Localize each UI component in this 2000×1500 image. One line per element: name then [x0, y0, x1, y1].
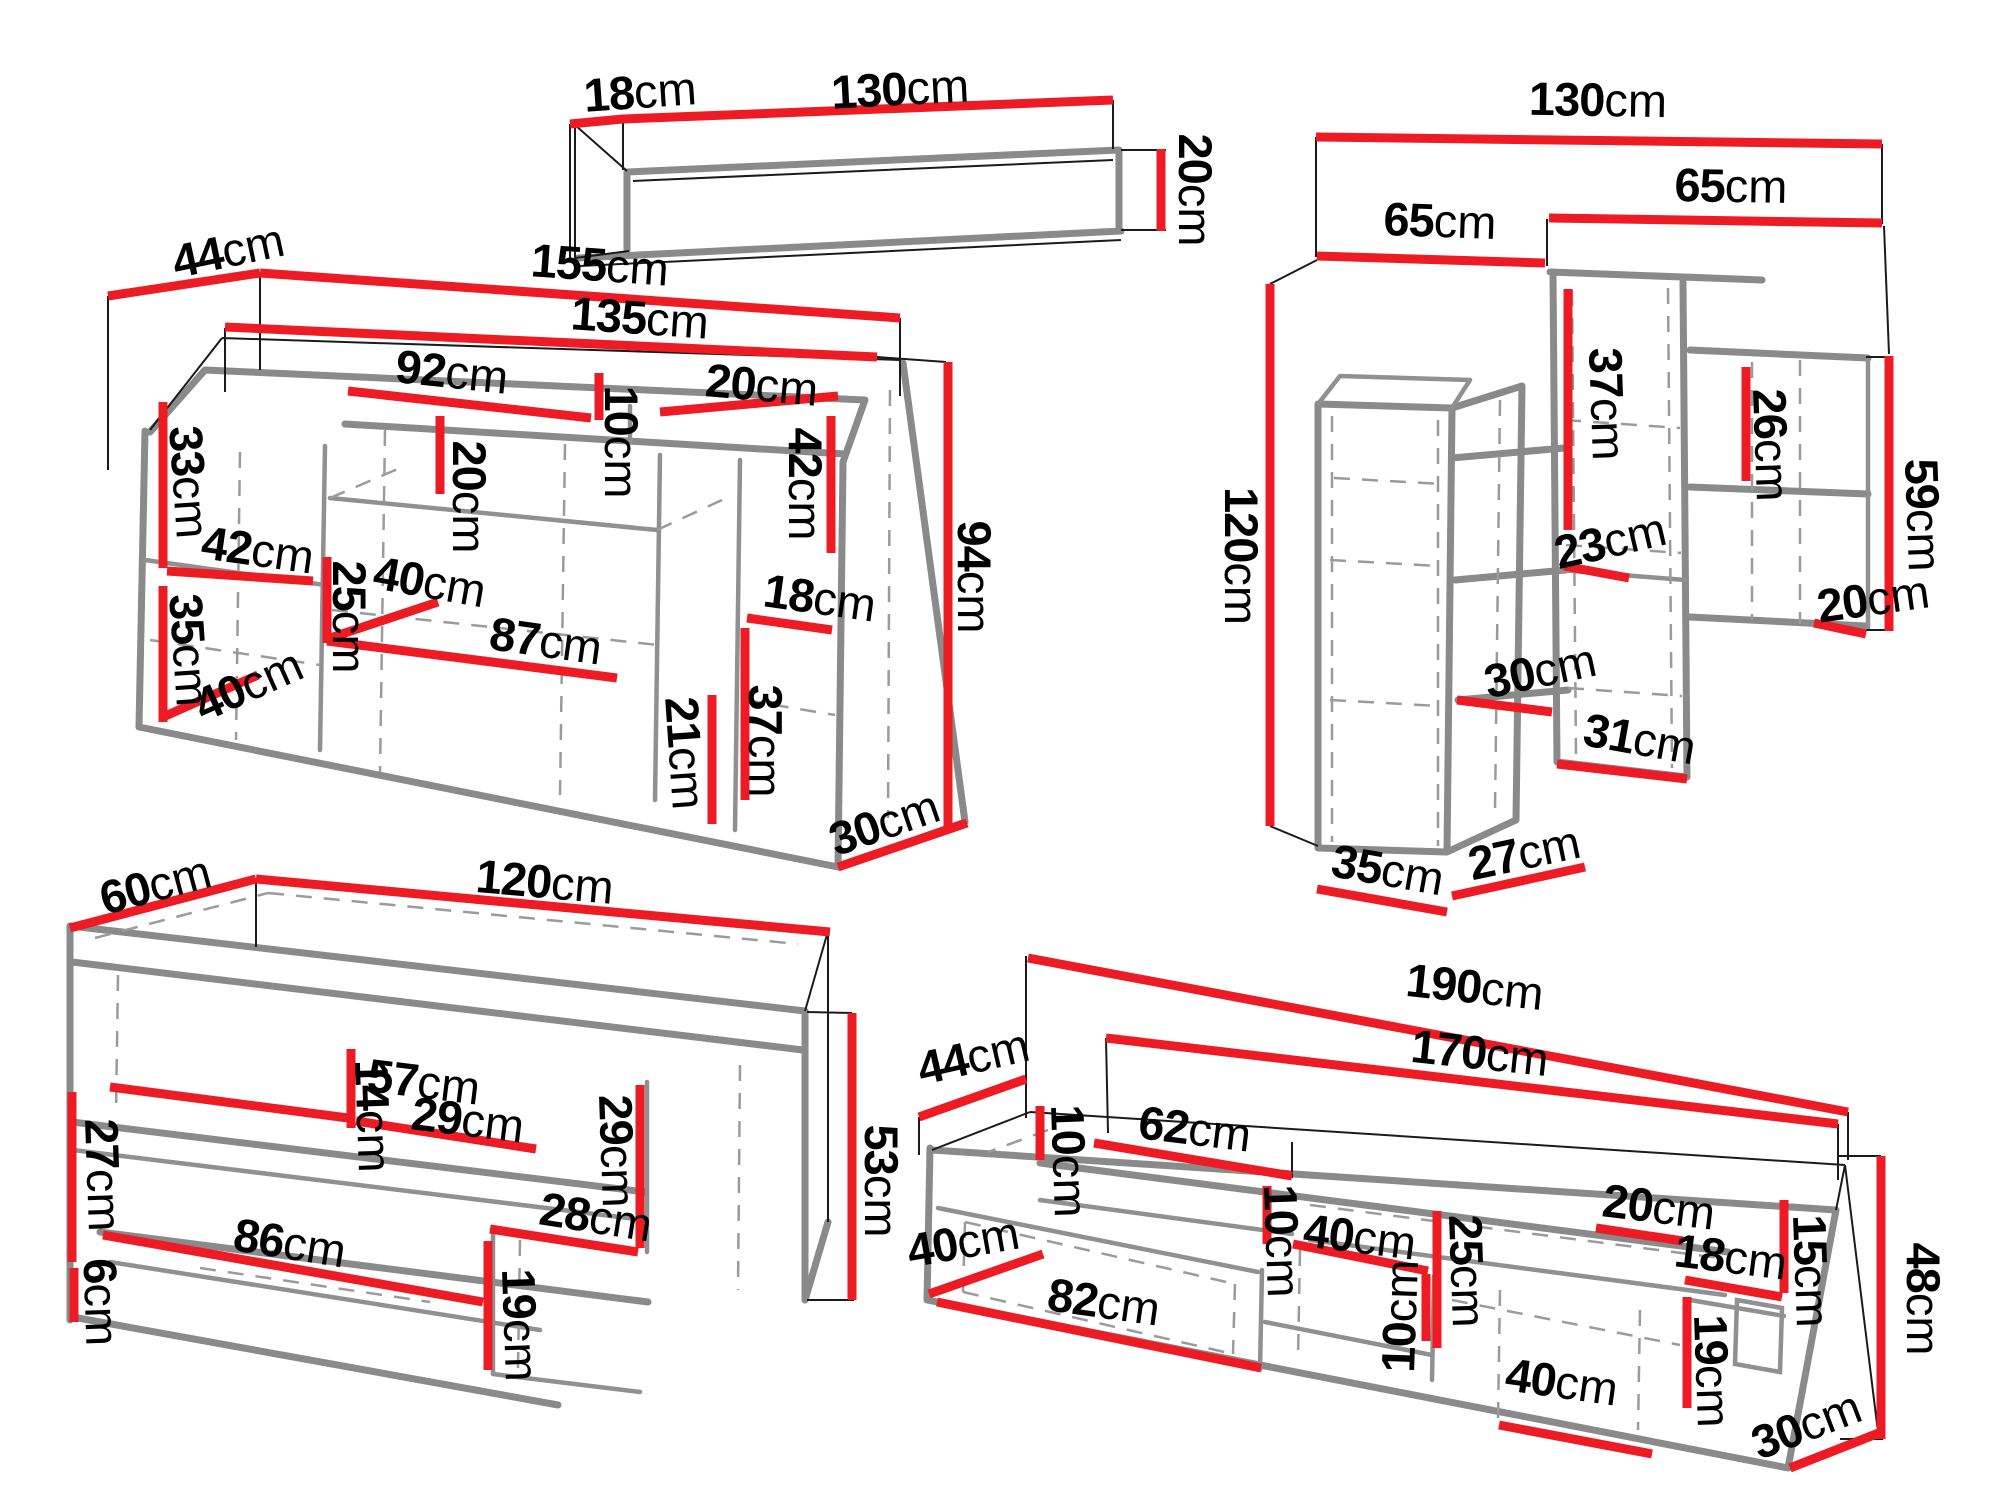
sideboard: 44cm 155cm 135cm 92cm 20cm 10cm 33cm 20c…	[108, 212, 1002, 867]
dim-wallunit-right-top-height: 37cm	[1580, 347, 1637, 462]
dim-wallunit-width-total: 130cm	[1529, 71, 1668, 126]
dim-tv-width-total: 190cm	[1404, 952, 1547, 1019]
wall-unit: 130cm 65cm 65cm 120cm 37cm 23cm 30cm 31c…	[1216, 71, 1953, 912]
dim-wallunit-shelf-gap-left: 30cm	[1479, 632, 1600, 707]
dim-sideboard-width-total: 155cm	[529, 233, 670, 296]
dim-wallunit-base-depth: 27cm	[1463, 814, 1584, 889]
dim-wallunit-wing-height: 59cm	[1896, 458, 1953, 573]
dim-table-plinth-height: 6cm	[74, 1257, 130, 1347]
dim-wallunit-bottom-right-width: 31cm	[1580, 702, 1700, 774]
dim-sideboard-shelf-gap-upper: 20cm	[444, 441, 497, 554]
dim-sideboard-width-inner: 135cm	[569, 286, 710, 349]
dim-tv-height-right: 48cm	[1898, 1243, 1951, 1356]
dim-tv-mid-open-height: 25cm	[1440, 1214, 1497, 1329]
dim-table-depth: 60cm	[94, 844, 217, 924]
dim-table-right-lower-height: 19cm	[493, 1268, 550, 1383]
dim-shelf-depth: 18cm	[582, 61, 698, 122]
dim-table-side-upper-height: 27cm	[76, 1118, 133, 1233]
dim-sideboard-niche-right-width: 20cm	[703, 353, 820, 416]
dim-sideboard-bottom-height: 21cm	[656, 695, 717, 811]
dim-tv-niche-height: 10cm	[1042, 1104, 1099, 1219]
dim-wallunit-wing-shelf-depth: 20cm	[1813, 564, 1932, 632]
dim-table-bottom-width: 86cm	[230, 1207, 350, 1277]
dim-wallunit-right-width: 65cm	[1674, 158, 1788, 213]
dim-tv-right-lower-height: 19cm	[1685, 1314, 1742, 1429]
dim-table-divider-height: 14cm	[346, 1059, 403, 1174]
dim-tv-base-depth-right: 30cm	[1744, 1379, 1868, 1469]
wall-shelf-dimension-lines	[570, 100, 1161, 231]
dim-wallunit-left-width: 65cm	[1383, 192, 1498, 249]
dim-sideboard-right-open-height: 42cm	[780, 428, 833, 541]
dim-sideboard-niche-height: 10cm	[596, 386, 649, 499]
dim-table-shelf-right-width: 29cm	[409, 1086, 528, 1152]
dim-shelf-width: 130cm	[830, 58, 971, 118]
diagram-canvas: 18cm 130cm 20cm 44cm 155cm 135cm 92cm 20…	[0, 0, 2000, 1500]
dim-tv-mid-gap-height2: 10cm	[1371, 1259, 1428, 1374]
dim-tv-right-gap-height: 15cm	[1784, 1214, 1841, 1329]
tv-stand: 44cm 190cm 170cm 10cm 62cm 40cm 82cm 10c…	[903, 952, 1951, 1469]
dim-shelf-height: 20cm	[1170, 134, 1223, 247]
dim-sideboard-shelf-gap-lower: 25cm	[324, 561, 377, 674]
dim-sideboard-shelf-depth: 40cm	[370, 545, 490, 617]
coffee-table: 60cm 120cm 57cm 14cm 29cm 27cm 6cm 86cm …	[70, 844, 909, 1405]
dim-table-height-total: 53cm	[856, 1125, 909, 1238]
wall-shelf: 18cm 130cm 20cm	[570, 58, 1223, 266]
dim-tv-door-width: 40cm	[1502, 1347, 1621, 1415]
dim-sideboard-height-total: 94cm	[949, 521, 1002, 634]
dim-sideboard-right-door-height: 37cm	[740, 685, 793, 798]
dim-table-right-open-height: 29cm	[590, 1094, 647, 1209]
dim-wallunit-wing-gap: 26cm	[1744, 388, 1801, 503]
dim-wallunit-left-height: 120cm	[1216, 487, 1269, 625]
furniture-dimensions-diagram: 18cm 130cm 20cm 44cm 155cm 135cm 92cm 20…	[0, 0, 2000, 1500]
